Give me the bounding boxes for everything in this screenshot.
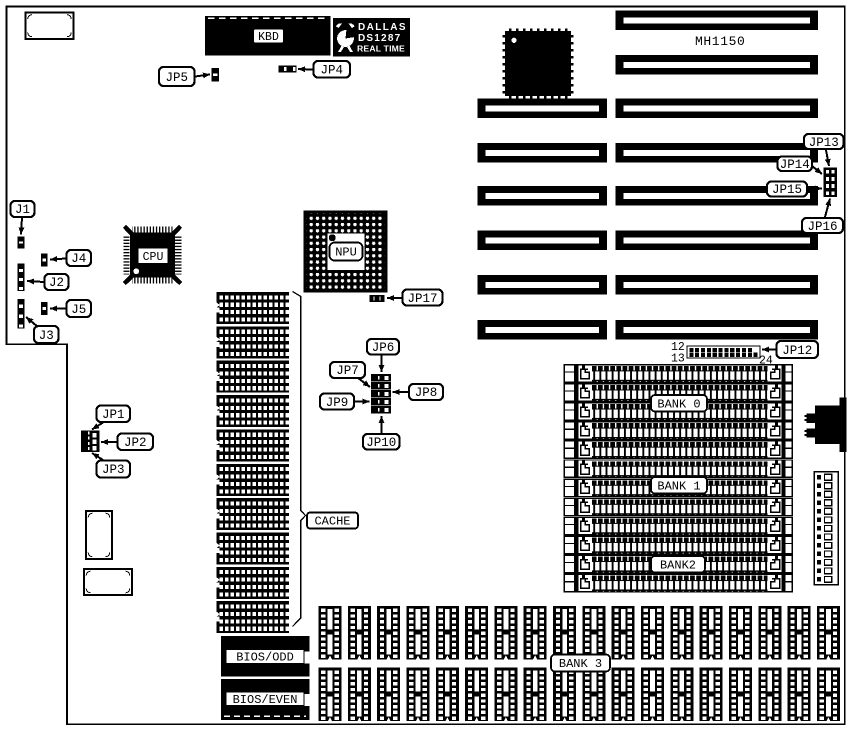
svg-text:J2: J2 — [49, 276, 64, 290]
svg-text:JP15: JP15 — [772, 183, 802, 197]
svg-text:J4: J4 — [71, 252, 86, 266]
svg-text:J1: J1 — [15, 203, 30, 217]
svg-text:JP17: JP17 — [407, 292, 437, 306]
svg-text:REAL TIME: REAL TIME — [357, 44, 405, 54]
svg-text:BIOS/EVEN: BIOS/EVEN — [233, 693, 298, 707]
svg-text:JP2: JP2 — [124, 436, 147, 450]
svg-text:JP6: JP6 — [372, 341, 395, 355]
svg-text:KBD: KBD — [258, 31, 279, 44]
svg-text:BANK 0: BANK 0 — [657, 397, 700, 411]
svg-text:JP10: JP10 — [366, 436, 396, 450]
svg-text:NPU: NPU — [335, 246, 357, 260]
svg-text:DALLAS: DALLAS — [358, 22, 407, 33]
svg-text:J5: J5 — [71, 303, 86, 317]
svg-text:BIOS/ODD: BIOS/ODD — [236, 651, 294, 665]
svg-text:BANK2: BANK2 — [660, 558, 696, 572]
svg-text:JP13: JP13 — [809, 136, 839, 150]
svg-text:JP3: JP3 — [102, 463, 125, 477]
svg-text:J3: J3 — [39, 329, 54, 343]
svg-text:JP12: JP12 — [782, 344, 812, 358]
svg-text:JP7: JP7 — [336, 364, 359, 378]
svg-text:JP9: JP9 — [326, 396, 349, 410]
svg-text:JP14: JP14 — [780, 158, 810, 172]
svg-text:MH1150: MH1150 — [695, 34, 745, 49]
svg-text:BANK 1: BANK 1 — [657, 479, 700, 493]
svg-text:13: 13 — [671, 353, 685, 366]
svg-text:CACHE: CACHE — [314, 515, 350, 529]
svg-text:JP1: JP1 — [102, 408, 125, 422]
svg-text:JP16: JP16 — [807, 220, 837, 234]
svg-text:JP4: JP4 — [320, 64, 343, 78]
svg-text:BANK 3: BANK 3 — [559, 657, 602, 671]
svg-text:JP5: JP5 — [165, 71, 188, 85]
svg-text:DS1287: DS1287 — [358, 33, 401, 44]
svg-text:CPU: CPU — [143, 251, 164, 264]
svg-text:JP8: JP8 — [415, 386, 438, 400]
